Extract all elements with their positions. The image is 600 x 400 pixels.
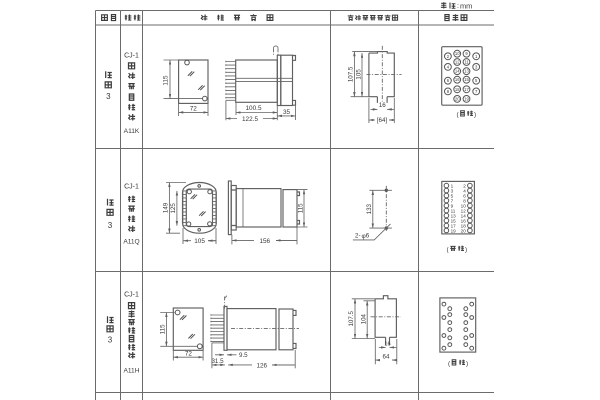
svg-text:6: 6 xyxy=(366,233,370,240)
svg-text:126: 126 xyxy=(256,362,267,369)
svg-text:133: 133 xyxy=(366,203,373,214)
svg-text:16: 16 xyxy=(379,102,386,109)
svg-text:12: 12 xyxy=(455,60,460,65)
svg-text:19: 19 xyxy=(451,228,457,233)
svg-text:A11H: A11H xyxy=(123,368,139,375)
svg-text:14: 14 xyxy=(455,69,460,74)
svg-text:72: 72 xyxy=(190,106,198,113)
svg-text:17: 17 xyxy=(464,87,469,92)
svg-text:2-: 2- xyxy=(355,233,361,240)
svg-text:125: 125 xyxy=(170,203,177,214)
svg-text:105: 105 xyxy=(194,238,205,245)
svg-text:18: 18 xyxy=(455,87,460,92)
svg-text:A11Q: A11Q xyxy=(123,238,139,245)
svg-text:35: 35 xyxy=(283,109,291,116)
svg-text:149: 149 xyxy=(162,202,169,213)
svg-text:11: 11 xyxy=(464,60,469,65)
svg-text:16: 16 xyxy=(455,77,460,82)
svg-text:10: 10 xyxy=(455,51,460,56)
svg-text:3: 3 xyxy=(106,92,111,101)
svg-text:115: 115 xyxy=(297,203,304,213)
svg-text:64: 64 xyxy=(383,353,390,360)
svg-text:107.5: 107.5 xyxy=(348,310,355,326)
svg-text:3: 3 xyxy=(108,336,113,345)
svg-text:19: 19 xyxy=(464,96,469,101)
svg-text:mm: mm xyxy=(460,1,472,10)
svg-text:104: 104 xyxy=(360,313,367,324)
svg-text:156: 156 xyxy=(259,238,270,245)
svg-text:9.5: 9.5 xyxy=(239,352,248,359)
svg-text:107.5: 107.5 xyxy=(348,66,355,82)
svg-text:20: 20 xyxy=(461,228,467,233)
svg-text::: : xyxy=(457,3,459,10)
svg-text:CJ-1: CJ-1 xyxy=(124,184,139,191)
svg-text:115: 115 xyxy=(163,75,170,86)
svg-text:15: 15 xyxy=(464,77,469,82)
svg-text:): ) xyxy=(466,361,468,368)
svg-text:20: 20 xyxy=(455,96,460,101)
svg-text:31.5: 31.5 xyxy=(211,358,224,365)
svg-text:[64]: [64] xyxy=(377,117,388,124)
svg-text:CJ-1: CJ-1 xyxy=(124,292,139,299)
svg-text:A11K: A11K xyxy=(124,128,140,135)
svg-text:115: 115 xyxy=(159,324,166,334)
svg-text:CJ-1: CJ-1 xyxy=(124,53,139,60)
svg-text:): ) xyxy=(465,247,467,254)
svg-text:13: 13 xyxy=(464,69,469,74)
svg-text:): ) xyxy=(474,112,476,119)
svg-text:122.5: 122.5 xyxy=(242,116,258,123)
svg-text:105: 105 xyxy=(355,69,362,80)
svg-text:16: 16 xyxy=(384,341,390,347)
svg-text:3: 3 xyxy=(108,221,113,230)
svg-text:100.5: 100.5 xyxy=(246,105,262,112)
svg-text:72: 72 xyxy=(185,350,193,357)
